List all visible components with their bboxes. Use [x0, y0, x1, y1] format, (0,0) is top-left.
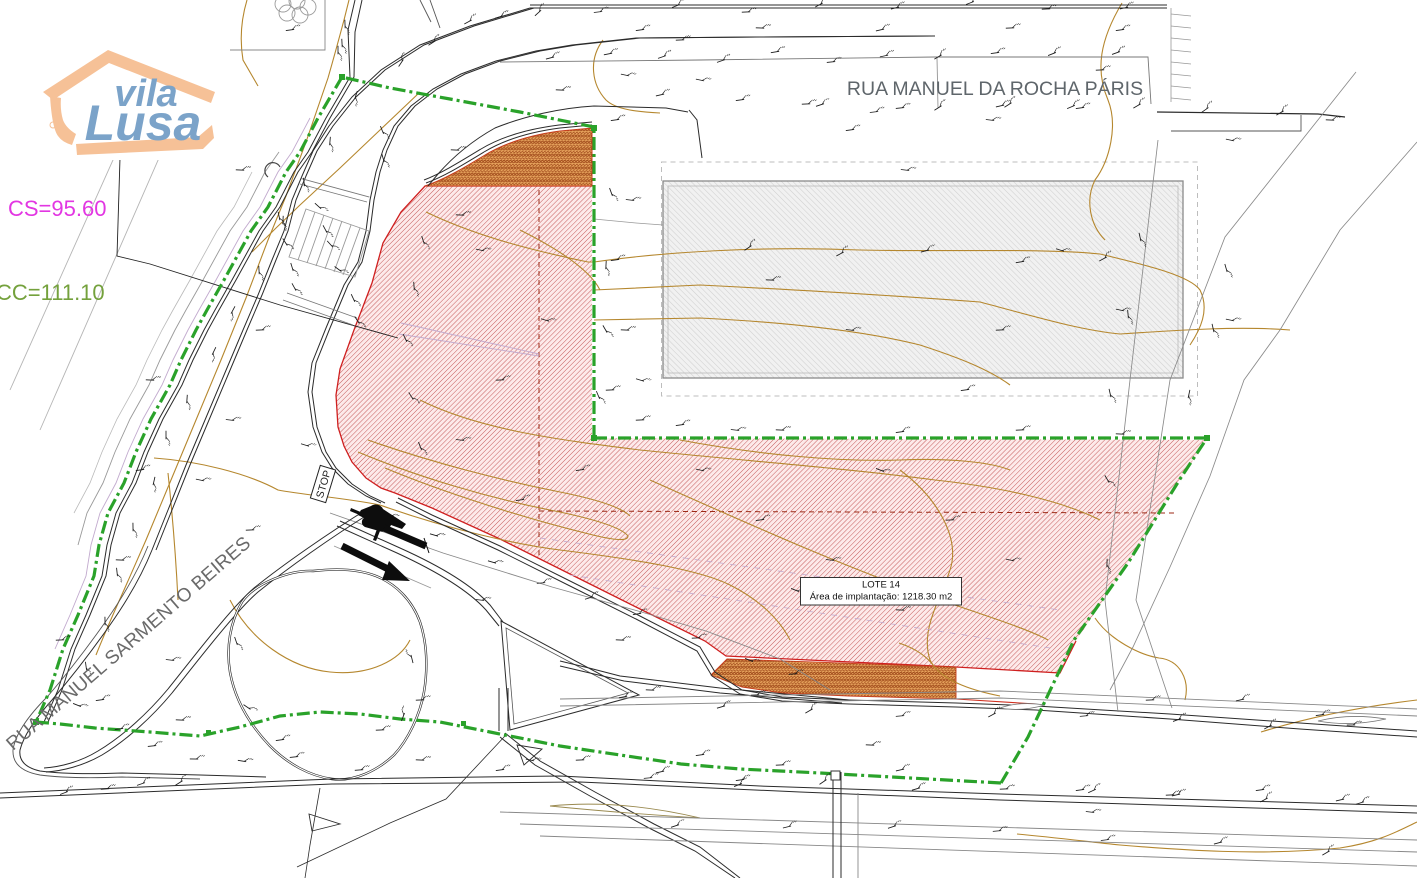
svg-text:CC=111.10: CC=111.10 [0, 280, 105, 305]
svg-text:RUA MANUEL DA ROCHA PÁRIS: RUA MANUEL DA ROCHA PÁRIS [847, 77, 1143, 100]
svg-text:CS=95.60: CS=95.60 [8, 196, 106, 221]
svg-text:Lusa: Lusa [85, 95, 202, 151]
svg-text:Área de implantação: 1218.30 m: Área de implantação: 1218.30 m2 [810, 592, 953, 603]
svg-text:LOTE 14: LOTE 14 [862, 580, 900, 591]
